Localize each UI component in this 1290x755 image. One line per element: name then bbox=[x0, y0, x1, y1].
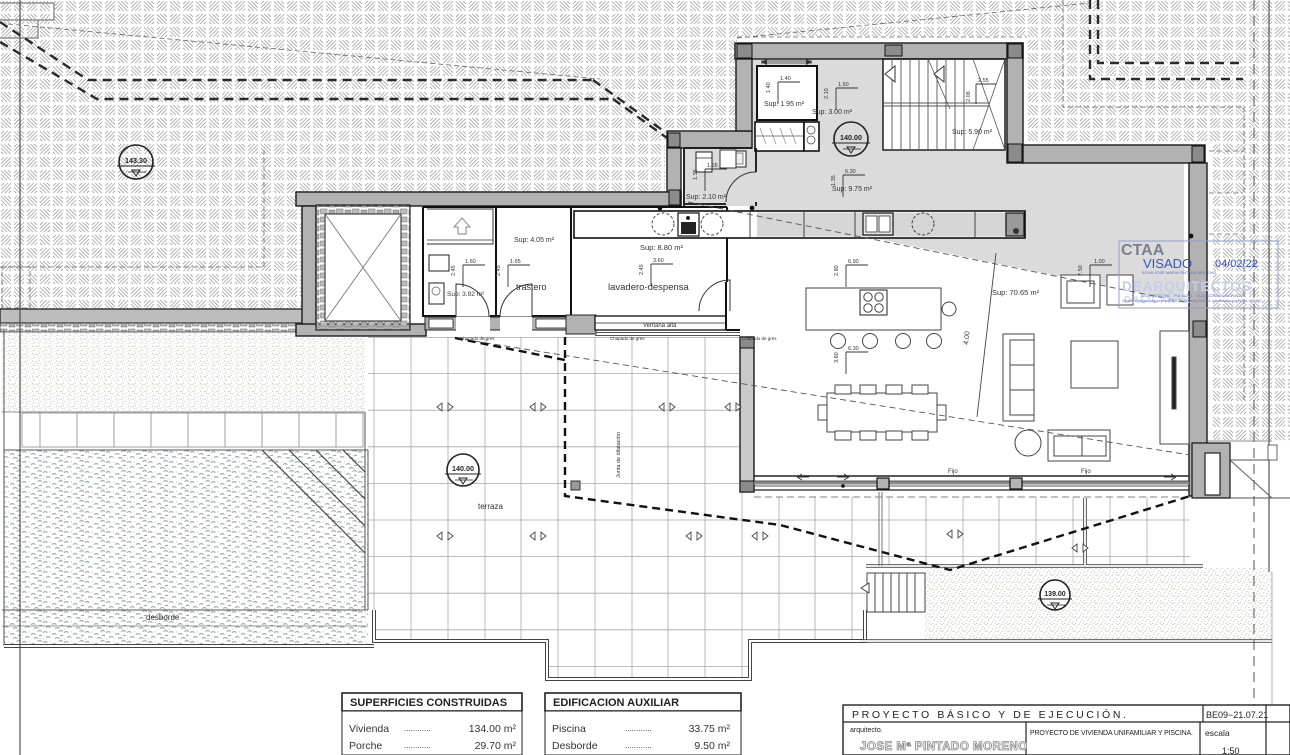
svg-text:Desborde: Desborde bbox=[552, 740, 598, 752]
svg-text:lavadero-despensa: lavadero-despensa bbox=[608, 282, 690, 293]
svg-text:134.00 m²: 134.00 m² bbox=[469, 723, 517, 735]
svg-text:Ventana alta: Ventana alta bbox=[643, 323, 677, 329]
svg-text:terraza: terraza bbox=[478, 502, 503, 511]
svg-text:04/02/22: 04/02/22 bbox=[1215, 258, 1258, 270]
svg-text:1:50: 1:50 bbox=[1222, 746, 1240, 755]
svg-text:Sup: 2.10 m²: Sup: 2.10 m² bbox=[686, 194, 727, 201]
svg-text:3.60: 3.60 bbox=[653, 258, 664, 264]
svg-text:7.50: 7.50 bbox=[1078, 265, 1084, 276]
svg-text:Piscina: Piscina bbox=[552, 723, 586, 735]
svg-text:139.00: 139.00 bbox=[1044, 591, 1066, 598]
svg-text:VISADO: VISADO bbox=[1143, 256, 1192, 271]
svg-text:Sup: 70.65 m²: Sup: 70.65 m² bbox=[992, 288, 1040, 297]
svg-text:Fijo: Fijo bbox=[1081, 469, 1091, 475]
svg-text:arquitecto.: arquitecto. bbox=[850, 727, 883, 734]
svg-text:Sup: 3.92 m²: Sup: 3.92 m² bbox=[447, 291, 485, 298]
svg-text:SUPERFICIES CONSTRUIDAS: SUPERFICIES CONSTRUIDAS bbox=[350, 697, 507, 709]
svg-text:2.55: 2.55 bbox=[978, 78, 989, 84]
svg-text:............: ............ bbox=[404, 724, 431, 733]
svg-text:3.60: 3.60 bbox=[834, 352, 840, 363]
svg-text:JOSE Mª PINTADO MORENO: JOSE Mª PINTADO MORENO bbox=[860, 741, 1028, 753]
svg-text:BE09−21.07.21: BE09−21.07.21 bbox=[1206, 710, 1268, 720]
svg-text:1.55: 1.55 bbox=[707, 163, 718, 169]
svg-text:1.00: 1.00 bbox=[1094, 259, 1105, 265]
svg-text:............: ............ bbox=[404, 741, 431, 750]
svg-text:Sup: 4.05 m²: Sup: 4.05 m² bbox=[514, 237, 555, 244]
svg-text:6.30: 6.30 bbox=[848, 346, 859, 352]
svg-text:Chapado de gres: Chapado de gres bbox=[742, 336, 777, 341]
svg-text:Sup: 9.75 m²: Sup: 9.75 m² bbox=[832, 186, 873, 193]
svg-text:DEARQUITECTOS: DEARQUITECTOS bbox=[1122, 279, 1252, 294]
svg-text:Sup: 8.80 m²: Sup: 8.80 m² bbox=[640, 243, 683, 252]
svg-text:6.30: 6.30 bbox=[845, 169, 856, 175]
svg-text:02149 JOSE MARIA PINTADO MOREN: 02149 JOSE MARIA PINTADO MORENO bbox=[1142, 270, 1216, 275]
svg-text:2.45: 2.45 bbox=[451, 265, 457, 276]
svg-text:1.50: 1.50 bbox=[838, 82, 849, 88]
svg-text:............: ............ bbox=[625, 741, 652, 750]
svg-text:trastero: trastero bbox=[516, 282, 547, 292]
svg-text:2.06: 2.06 bbox=[966, 91, 972, 102]
svg-text:1.40: 1.40 bbox=[780, 76, 791, 82]
svg-text:Fijo: Fijo bbox=[948, 469, 958, 475]
svg-text:143.30: 143.30 bbox=[125, 156, 147, 165]
svg-text:6.90: 6.90 bbox=[848, 259, 859, 265]
svg-text:1.35: 1.35 bbox=[693, 169, 699, 180]
svg-text:2.10: 2.10 bbox=[824, 88, 830, 99]
svg-text:140.00: 140.00 bbox=[840, 133, 862, 142]
svg-text:PROYECTO BÁSICO Y DE EJECUCIÓN: PROYECTO BÁSICO Y DE EJECUCIÓN. bbox=[852, 708, 1127, 721]
svg-text:9.50 m²: 9.50 m² bbox=[694, 740, 730, 752]
svg-text:............: ............ bbox=[625, 724, 652, 733]
svg-text:2.80: 2.80 bbox=[834, 265, 840, 276]
svg-text:140.00: 140.00 bbox=[452, 464, 474, 473]
svg-text:1.60: 1.60 bbox=[465, 259, 476, 265]
svg-text:29.70 m²: 29.70 m² bbox=[475, 740, 517, 752]
svg-text:Sup: 5.90 m²: Sup: 5.90 m² bbox=[952, 129, 993, 136]
svg-text:Junta de dilatación: Junta de dilatación bbox=[616, 432, 622, 478]
svg-text:Visado Colegial segun el artic: Visado Colegial segun el articulo 13 de … bbox=[1122, 299, 1262, 303]
svg-text:Vivienda: Vivienda bbox=[349, 723, 389, 735]
svg-text:Sup: 3.00 m²: Sup: 3.00 m² bbox=[812, 109, 853, 116]
svg-text:2.45: 2.45 bbox=[496, 265, 502, 276]
svg-text:1.40: 1.40 bbox=[766, 82, 772, 93]
svg-text:33.75 m²: 33.75 m² bbox=[689, 723, 731, 735]
svg-text:escala: escala bbox=[1205, 728, 1230, 738]
svg-text:2.45: 2.45 bbox=[639, 264, 645, 275]
svg-text:1.35: 1.35 bbox=[831, 175, 837, 186]
svg-text:EDIFICACION AUXILIAR: EDIFICACION AUXILIAR bbox=[553, 697, 679, 709]
svg-text:PROYECTO DE VIVIENDA UNIFAMILI: PROYECTO DE VIVIENDA UNIFAMILIAR Y PISCI… bbox=[1030, 730, 1193, 737]
svg-text:Sup: 1.95 m²: Sup: 1.95 m² bbox=[764, 101, 805, 108]
svg-text:Chapado de gres: Chapado de gres bbox=[610, 336, 645, 341]
svg-text:Porche: Porche bbox=[349, 740, 382, 752]
svg-text:desborde: desborde bbox=[146, 613, 180, 622]
svg-text:B/22-02270-750 P-II 44741: B/22-02270-750 P-II 44741 D-22-02270/94-… bbox=[1141, 293, 1246, 298]
svg-text:Chapado de gres: Chapado de gres bbox=[460, 336, 495, 341]
svg-text:1.65: 1.65 bbox=[510, 259, 521, 265]
